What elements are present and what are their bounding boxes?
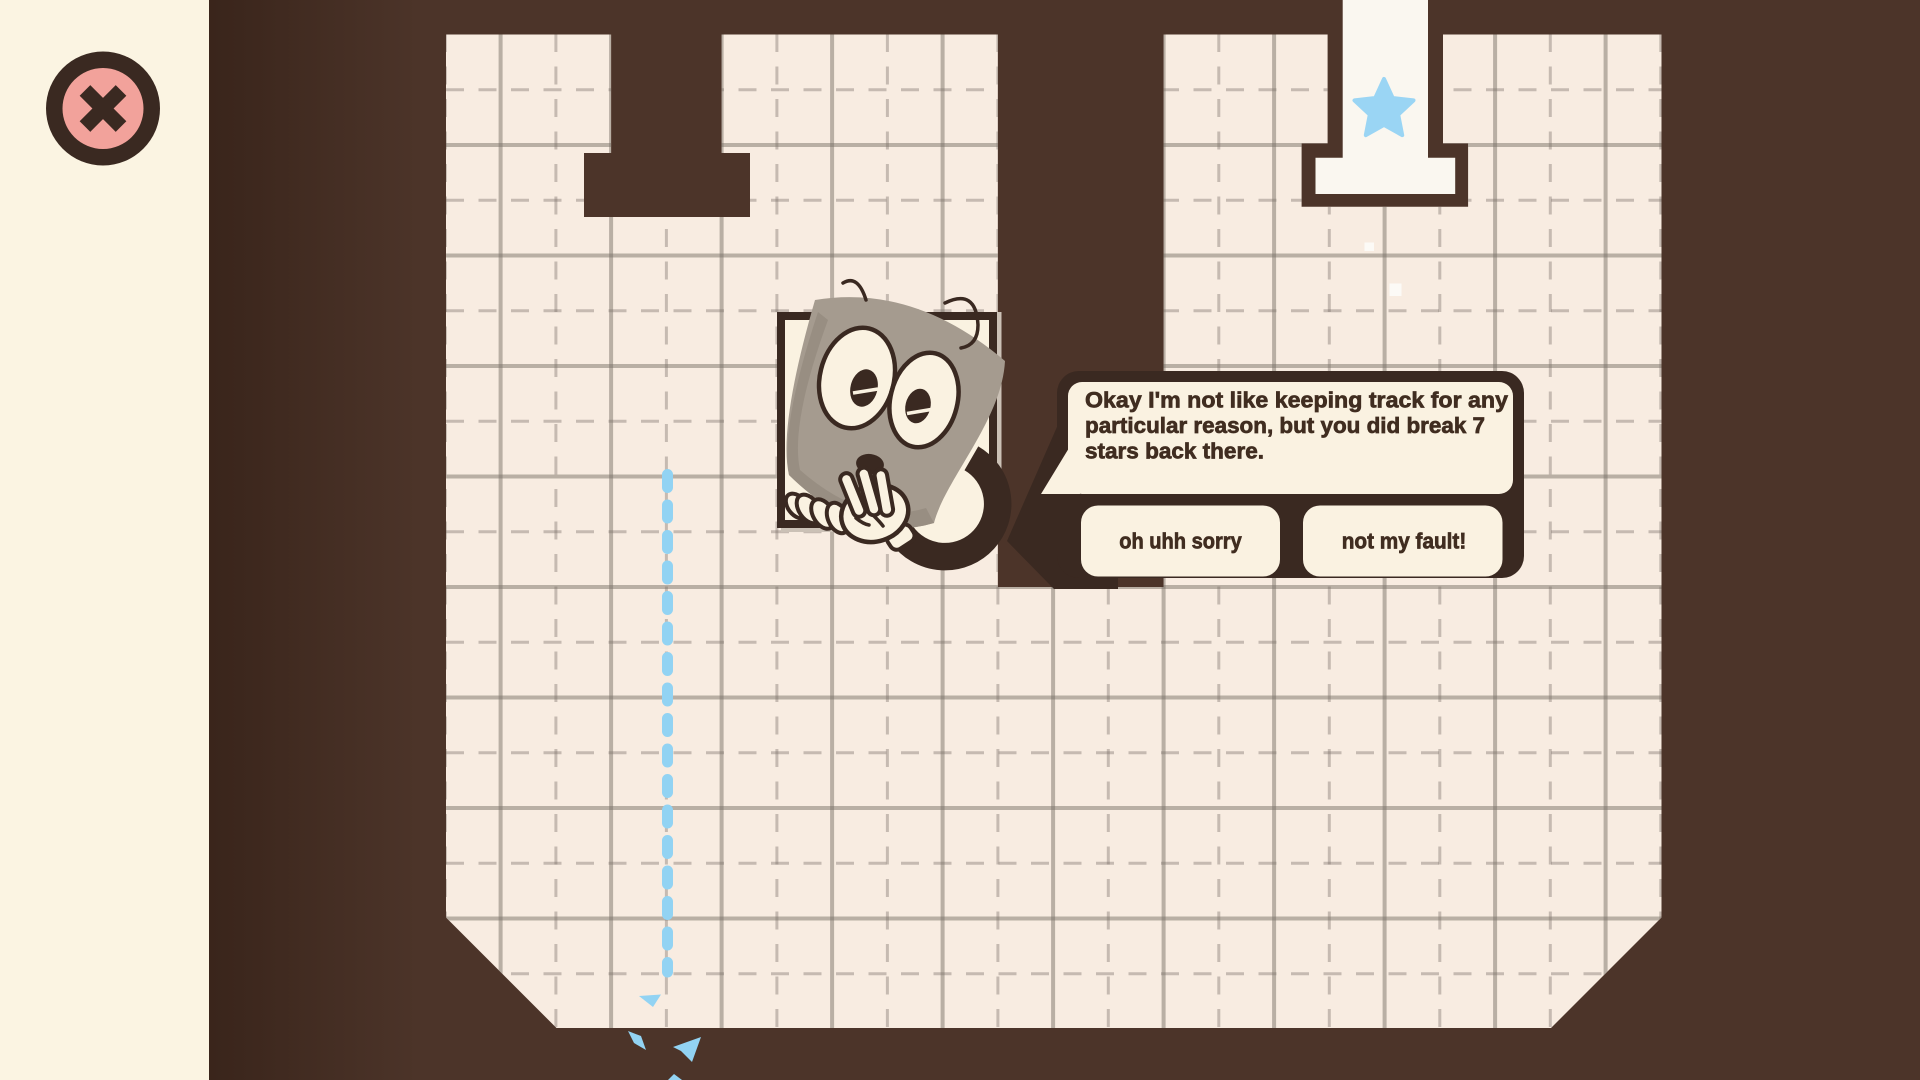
svg-text:stars back there.: stars back there.	[1085, 439, 1264, 464]
svg-text:not my fault!: not my fault!	[1342, 529, 1467, 554]
svg-text:oh uhh sorry: oh uhh sorry	[1119, 529, 1242, 554]
svg-text:particular reason, but you did: particular reason, but you did break 7	[1085, 413, 1485, 438]
svg-text:Okay I'm not like keeping trac: Okay I'm not like keeping track for any	[1085, 388, 1508, 413]
